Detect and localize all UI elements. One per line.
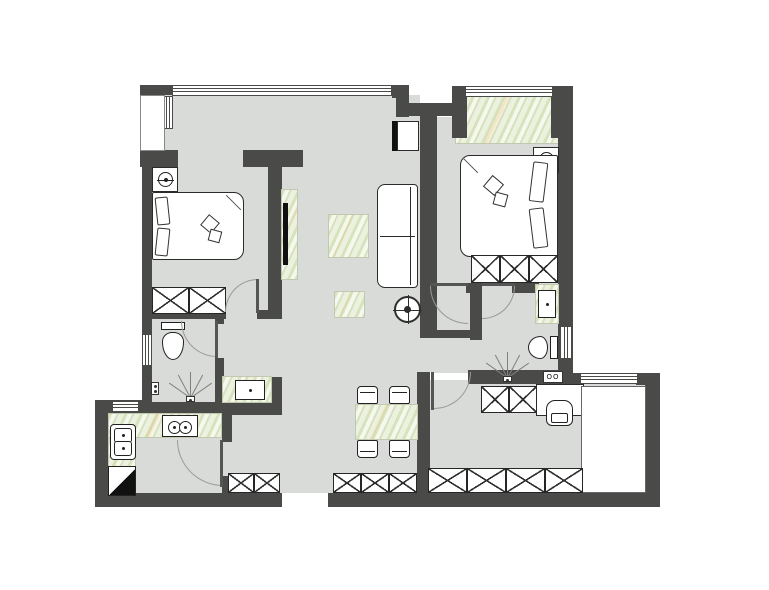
study-wardrobe-c — [506, 468, 545, 493]
wall-study-east — [645, 373, 660, 507]
shoe-cabinet-side-panel — [392, 121, 397, 151]
dining-table — [355, 404, 418, 440]
wall-drain-bath1 — [151, 382, 159, 395]
door-master-leaf — [430, 283, 468, 286]
fridge — [108, 466, 136, 496]
toilet-masterbath — [527, 334, 559, 361]
shower-spray-masterbath — [493, 352, 521, 378]
door-masterbath-leaf — [482, 283, 515, 286]
wardrobe-master-a — [471, 255, 500, 283]
wall-kitchen-west — [95, 400, 108, 507]
bay-structure — [140, 95, 165, 151]
door-bedroom1-leaf — [256, 279, 259, 313]
dining-cabinet-b — [361, 473, 389, 493]
shoe-cabinet — [397, 121, 419, 151]
wall-top-left — [140, 85, 174, 95]
wardrobe-master-b — [500, 255, 529, 283]
window-kitchen-west — [112, 401, 139, 412]
lamp-bedroom1-icon — [158, 172, 173, 187]
entry-opening — [282, 493, 328, 508]
study-platform — [581, 386, 646, 493]
door-kitchen-leaf — [220, 440, 223, 487]
door-study-leaf — [431, 372, 434, 410]
dining-chair-nw — [357, 386, 378, 404]
study-cabinet-b — [509, 386, 537, 413]
floor-plan-page: OO — [0, 0, 769, 590]
pillow-bedroom1-a — [155, 196, 171, 225]
dining-chair-ne — [389, 386, 410, 404]
window-living-north — [172, 85, 392, 96]
kitchen-stove — [162, 415, 198, 437]
hall-cabinet-b — [254, 473, 280, 493]
wall-partition-header — [243, 150, 303, 167]
wardrobe-bedroom1-b — [189, 287, 226, 314]
window-bay-north — [465, 86, 553, 97]
door-bath1-leaf — [215, 321, 218, 358]
wall-left-upper — [142, 150, 152, 335]
window-masterbath-east — [560, 326, 572, 359]
wardrobe-master-c — [529, 255, 558, 283]
floor-drain-masterbath — [503, 376, 512, 382]
dining-cabinet-c — [389, 473, 417, 493]
side-table — [334, 291, 365, 318]
coffee-table — [328, 214, 369, 258]
ceiling-fan-symbol — [394, 296, 421, 323]
study-wardrobe-d — [545, 468, 583, 493]
wardrobe-bedroom1-a — [152, 287, 189, 314]
study-wardrobe-b — [467, 468, 506, 493]
study-cabinet-a — [481, 386, 509, 413]
shower-spray-bath1 — [176, 372, 204, 398]
hall-vanity-sink — [235, 380, 265, 400]
dining-chair-sw — [357, 440, 378, 458]
dining-cabinet-a — [333, 473, 361, 493]
wall-kitchen-east-a — [222, 415, 232, 442]
window-study-north — [580, 373, 638, 384]
floor-plan-canvas: OO — [0, 0, 769, 590]
masterbath-sink — [538, 290, 556, 318]
wall-bath1-south — [142, 402, 222, 413]
hall-cabinet-a — [228, 473, 254, 493]
wall-partition-stem — [268, 167, 282, 319]
wall-passage-south — [420, 330, 482, 338]
tv-living — [283, 203, 288, 265]
floor-drain-bath1 — [186, 396, 195, 402]
sofa — [377, 184, 418, 288]
window-bath1-west — [142, 334, 152, 366]
study-wardrobe-a — [428, 468, 467, 493]
bay-window-sill — [455, 96, 563, 144]
dining-chair-se — [389, 440, 410, 458]
washing-machine-symbol: OO — [543, 371, 563, 383]
desk-chair — [546, 400, 573, 426]
wall-bottom-b — [328, 493, 660, 507]
kitchen-sink — [110, 424, 136, 460]
